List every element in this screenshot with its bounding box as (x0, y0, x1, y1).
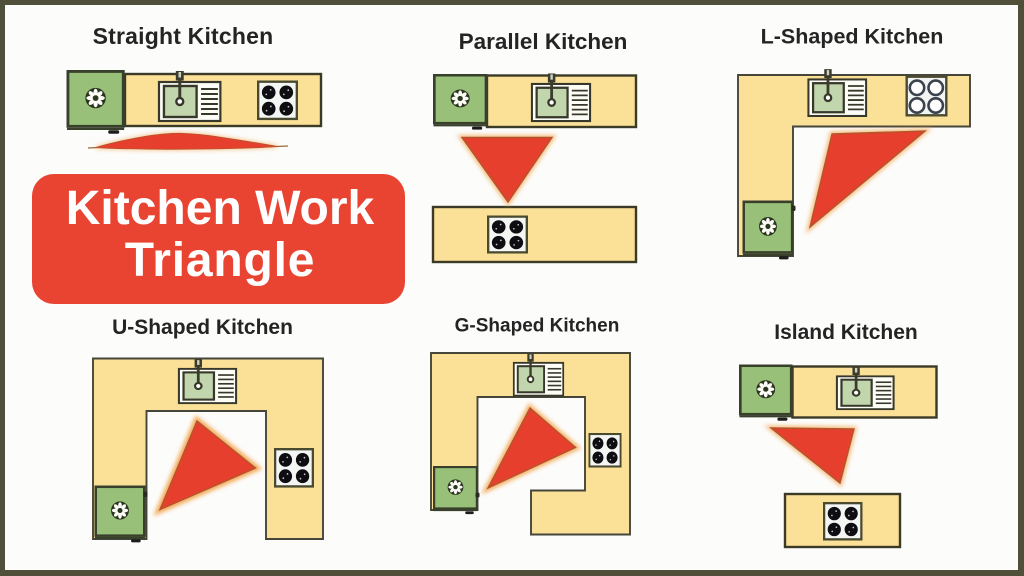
svg-text:Straight Kitchen: Straight Kitchen (93, 23, 274, 49)
svg-text:Triangle: Triangle (125, 234, 315, 287)
svg-text:Parallel Kitchen: Parallel Kitchen (459, 29, 628, 54)
svg-text:U-Shaped Kitchen: U-Shaped Kitchen (112, 316, 293, 339)
svg-text:Island Kitchen: Island Kitchen (774, 321, 918, 344)
svg-text:G-Shaped Kitchen: G-Shaped Kitchen (455, 316, 620, 337)
svg-text:L-Shaped Kitchen: L-Shaped Kitchen (761, 25, 944, 49)
svg-text:Kitchen Work: Kitchen Work (66, 182, 375, 235)
